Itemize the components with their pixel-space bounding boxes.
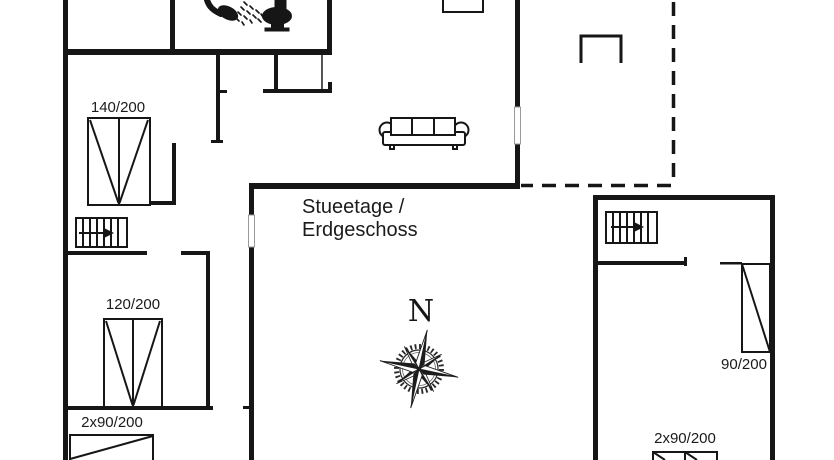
compass-rose-icon (372, 322, 467, 417)
bed-double-140-icon (88, 118, 150, 205)
bed-size-label-2x90-200-right: 2x90/200 (645, 431, 725, 446)
sofa-icon (380, 118, 469, 149)
terrace-dashed-boundary (521, 2, 674, 186)
shower-icon (207, 0, 263, 25)
floor-plan: Stueetage / Erdgeschoss N 140/200 120/20… (0, 0, 834, 460)
bed-size-label-2x90-200-left: 2x90/200 (72, 415, 152, 430)
compass-north-label: N (406, 297, 436, 327)
stairs-right-icon (606, 212, 657, 243)
bed-size-label-90-200: 90/200 (716, 357, 772, 372)
walls (63, 0, 775, 460)
garden-bench-icon (581, 36, 621, 63)
toilet-icon (262, 0, 292, 32)
bed-size-label-120-200: 120/200 (101, 297, 165, 312)
floor-title-line2: Erdgeschoss (302, 219, 418, 242)
bed-twin-left-icon (70, 435, 153, 460)
window-icon (249, 215, 255, 247)
floor-title-line1: Stueetage / (302, 196, 418, 219)
window-icon (515, 107, 521, 144)
stairs-left-icon (76, 218, 127, 247)
bed-single-90-icon (742, 264, 770, 352)
floor-title: Stueetage / Erdgeschoss (302, 196, 418, 242)
table-icon (443, 0, 483, 12)
bed-size-label-140-200: 140/200 (84, 100, 152, 115)
bed-twin-right-icon (653, 452, 717, 460)
bed-double-120-icon (104, 319, 162, 407)
